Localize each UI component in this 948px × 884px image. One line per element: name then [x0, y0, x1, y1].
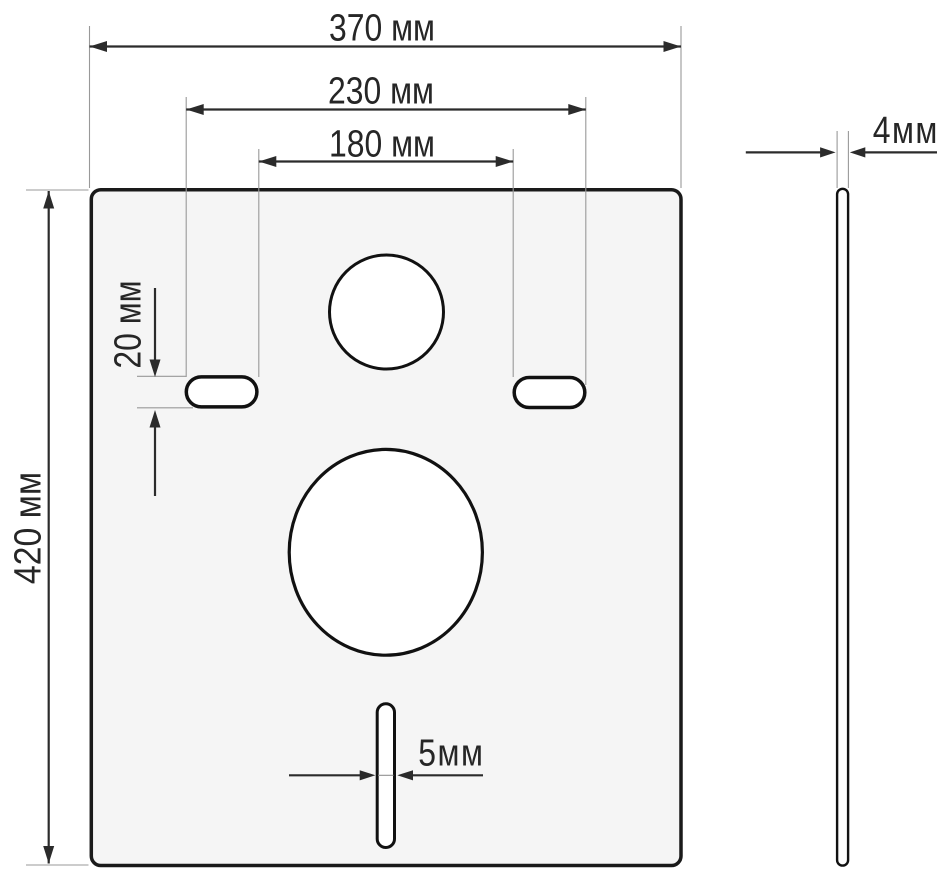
- svg-text:370 мм: 370 мм: [329, 7, 435, 49]
- svg-text:180 мм: 180 мм: [329, 123, 435, 165]
- svg-text:230 мм: 230 мм: [328, 70, 434, 112]
- svg-text:20 мм: 20 мм: [107, 280, 149, 368]
- svg-text:5мм: 5мм: [418, 732, 484, 774]
- svg-text:420 мм: 420 мм: [6, 472, 49, 584]
- svg-text:4мм: 4мм: [873, 110, 939, 152]
